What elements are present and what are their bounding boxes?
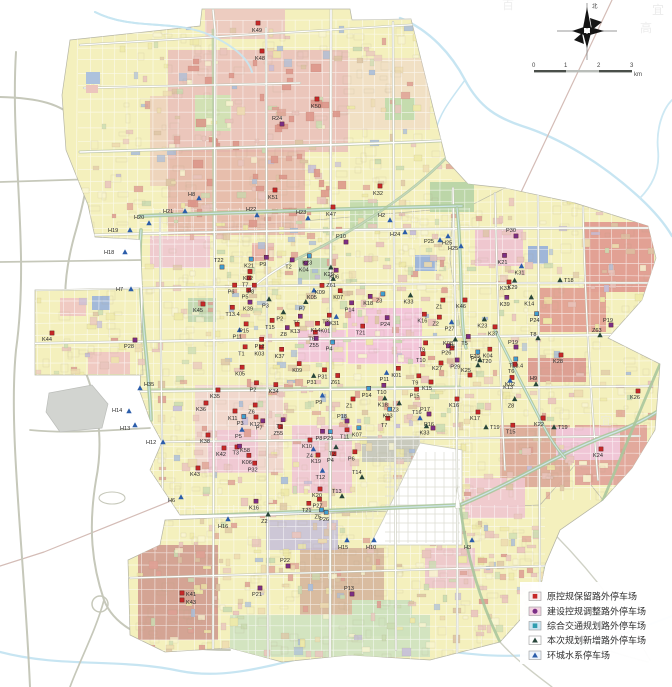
svg-text:T13.4: T13.4	[225, 312, 239, 318]
svg-text:K16: K16	[417, 319, 427, 325]
svg-text:H15: H15	[338, 545, 348, 551]
svg-text:Z5: Z5	[315, 514, 322, 520]
svg-text:K10: K10	[302, 444, 312, 450]
svg-text:T6: T6	[308, 337, 315, 343]
svg-text:H13: H13	[120, 426, 130, 432]
svg-text:Z61: Z61	[331, 380, 341, 386]
svg-text:T5: T5	[461, 341, 468, 347]
svg-text:K43: K43	[186, 600, 196, 606]
svg-text:P12: P12	[255, 344, 265, 350]
svg-text:P11: P11	[233, 334, 243, 340]
svg-text:K27: K27	[432, 366, 442, 372]
svg-text:P24: P24	[380, 322, 390, 328]
svg-text:T2: T2	[285, 264, 292, 270]
svg-text:P21: P21	[252, 592, 262, 598]
svg-text:K17: K17	[470, 416, 480, 422]
svg-text:K44: K44	[42, 337, 52, 343]
svg-text:Z3: Z3	[392, 408, 399, 414]
svg-text:K09: K09	[315, 290, 325, 296]
svg-text:P25: P25	[424, 239, 434, 245]
svg-text:K24: K24	[593, 453, 603, 459]
svg-text:T13.4: T13.4	[509, 364, 523, 370]
svg-text:H25: H25	[442, 241, 452, 247]
svg-text:P24: P24	[530, 318, 540, 324]
svg-text:T15: T15	[506, 430, 516, 436]
svg-text:H23: H23	[296, 210, 306, 216]
svg-text:P8: P8	[247, 290, 254, 296]
svg-text:T1: T1	[238, 351, 245, 357]
svg-text:H14: H14	[112, 408, 122, 414]
svg-text:K28: K28	[553, 359, 563, 365]
svg-text:本次规划新增路外停车场: 本次规划新增路外停车场	[547, 634, 646, 645]
svg-text:H21: H21	[163, 209, 173, 215]
svg-text:K43: K43	[190, 472, 200, 478]
svg-text:P19: P19	[603, 318, 613, 324]
svg-text:H7: H7	[116, 287, 123, 293]
svg-text:K39: K39	[243, 307, 253, 313]
svg-text:K45: K45	[193, 308, 203, 314]
svg-text:T8: T8	[530, 332, 537, 338]
svg-text:H2: H2	[378, 213, 385, 219]
svg-text:K21: K21	[498, 260, 508, 266]
svg-text:P3: P3	[262, 304, 269, 310]
svg-text:P29: P29	[323, 436, 333, 442]
svg-text:K16: K16	[449, 403, 459, 409]
svg-text:K35: K35	[210, 394, 220, 400]
svg-text:K15: K15	[422, 386, 432, 392]
svg-text:K46: K46	[456, 304, 466, 310]
svg-text:T22: T22	[214, 258, 224, 264]
svg-text:K31: K31	[329, 321, 339, 327]
svg-text:H22: H22	[246, 207, 256, 213]
svg-text:P31: P31	[318, 374, 328, 380]
svg-text:K13: K13	[503, 385, 513, 391]
svg-text:K07: K07	[333, 295, 343, 301]
svg-text:H25: H25	[448, 246, 458, 252]
svg-text:K14: K14	[524, 302, 534, 308]
svg-text:K39: K39	[500, 302, 510, 308]
svg-text:P19: P19	[508, 340, 518, 346]
svg-text:宜: 宜	[600, 413, 612, 428]
svg-text:T21: T21	[302, 508, 312, 514]
svg-text:T13: T13	[332, 489, 342, 495]
svg-text:T12: T12	[316, 475, 326, 481]
svg-text:H6: H6	[168, 498, 175, 504]
svg-text:T10: T10	[377, 390, 387, 396]
svg-text:P11: P11	[380, 377, 390, 383]
svg-text:Z1: Z1	[436, 305, 443, 311]
svg-text:K31: K31	[515, 271, 525, 277]
svg-text:K47: K47	[326, 212, 336, 218]
svg-text:H19: H19	[108, 228, 118, 234]
svg-text:P14: P14	[345, 307, 355, 313]
svg-text:P6: P6	[228, 290, 235, 296]
svg-text:P12: P12	[471, 357, 481, 363]
svg-text:P7: P7	[299, 306, 306, 312]
svg-text:T7: T7	[242, 282, 249, 288]
svg-text:Z2: Z2	[432, 322, 439, 328]
svg-text:Z55: Z55	[274, 431, 284, 437]
svg-text:K04: K04	[483, 354, 493, 360]
svg-text:T19: T19	[490, 425, 500, 431]
svg-text:综合交通规划路外停车场: 综合交通规划路外停车场	[547, 620, 646, 631]
svg-text:K18: K18	[378, 403, 388, 409]
svg-text:H3: H3	[464, 545, 471, 551]
svg-text:P3: P3	[237, 421, 244, 427]
svg-text:P30: P30	[506, 228, 516, 234]
svg-text:P15: P15	[239, 328, 249, 334]
svg-text:Z55: Z55	[309, 343, 319, 349]
svg-text:T21: T21	[356, 331, 366, 337]
svg-text:T1: T1	[276, 424, 283, 430]
svg-text:K03: K03	[383, 414, 393, 420]
svg-text:北: 北	[592, 2, 598, 10]
svg-text:K33: K33	[404, 300, 414, 306]
svg-text:K32: K32	[373, 191, 383, 197]
svg-text:P15: P15	[410, 394, 420, 400]
svg-text:P32: P32	[248, 468, 258, 474]
svg-text:Z8: Z8	[508, 403, 515, 409]
svg-text:宜: 宜	[652, 2, 664, 17]
svg-text:K13: K13	[290, 329, 300, 335]
svg-text:T2: T2	[329, 451, 336, 457]
svg-text:P4: P4	[327, 458, 334, 464]
svg-text:高: 高	[640, 20, 652, 35]
svg-text:K42: K42	[216, 452, 226, 458]
svg-text:T3: T3	[233, 451, 240, 457]
svg-text:Z1: Z1	[346, 404, 353, 410]
svg-text:K25: K25	[461, 368, 471, 374]
svg-text:P5: P5	[235, 434, 242, 440]
svg-text:K09: K09	[292, 368, 302, 374]
svg-text:K37: K37	[488, 331, 498, 337]
svg-text:P9: P9	[259, 262, 266, 268]
svg-text:K14: K14	[311, 328, 321, 334]
svg-text:P22: P22	[280, 558, 290, 564]
svg-text:K29: K29	[324, 272, 334, 278]
svg-text:T18: T18	[564, 278, 574, 284]
svg-text:K38: K38	[200, 439, 210, 445]
svg-text:K50: K50	[311, 104, 321, 110]
svg-text:K33: K33	[420, 431, 430, 437]
svg-text:K37: K37	[275, 354, 285, 360]
svg-text:P10: P10	[336, 234, 346, 240]
svg-text:T7: T7	[381, 423, 388, 429]
svg-text:T14: T14	[352, 470, 362, 476]
svg-text:Z63: Z63	[592, 328, 602, 334]
svg-text:P14: P14	[362, 393, 372, 399]
svg-text:T9: T9	[412, 380, 419, 386]
svg-text:K34: K34	[269, 389, 279, 395]
svg-text:百: 百	[502, 0, 514, 12]
svg-text:P27: P27	[445, 327, 455, 333]
svg-text:Z4: Z4	[306, 454, 313, 460]
svg-text:H9: H9	[530, 376, 537, 382]
svg-text:K18: K18	[363, 301, 373, 307]
svg-text:K05: K05	[235, 372, 245, 378]
svg-text:Z8: Z8	[280, 332, 287, 338]
svg-text:Z3: Z3	[376, 298, 383, 304]
svg-text:H35: H35	[144, 382, 154, 388]
svg-text:K36: K36	[196, 407, 206, 413]
svg-text:H12: H12	[146, 440, 156, 446]
svg-text:Z2: Z2	[261, 519, 268, 525]
svg-text:P18: P18	[337, 414, 347, 420]
svg-text:P2: P2	[250, 387, 257, 393]
svg-text:P2: P2	[276, 317, 283, 323]
svg-text:K21: K21	[244, 264, 254, 270]
svg-text:K07: K07	[352, 432, 362, 438]
svg-text:Z6: Z6	[248, 410, 255, 416]
svg-text:T19: T19	[558, 425, 568, 431]
svg-text:H10: H10	[366, 545, 376, 551]
svg-text:H20: H20	[134, 215, 144, 221]
svg-text:P6: P6	[348, 456, 355, 462]
svg-text:P17: P17	[420, 407, 430, 413]
svg-text:Z5: Z5	[448, 344, 455, 350]
svg-text:P31: P31	[307, 380, 317, 386]
svg-text:P7: P7	[256, 425, 263, 431]
svg-text:P8: P8	[316, 436, 323, 442]
svg-text:P26: P26	[441, 350, 451, 356]
svg-text:建设控规调整路外停车场: 建设控规调整路外停车场	[547, 605, 646, 616]
svg-text:H16: H16	[218, 524, 228, 530]
svg-text:K01: K01	[320, 328, 330, 334]
svg-text:P9: P9	[315, 400, 322, 406]
svg-text:K02: K02	[243, 276, 253, 282]
svg-text:环城水系停车场: 环城水系停车场	[547, 649, 610, 660]
svg-text:K29: K29	[508, 285, 518, 291]
svg-text:K26: K26	[630, 395, 640, 401]
svg-text:H24: H24	[390, 232, 400, 238]
svg-text:K48: K48	[255, 56, 265, 62]
svg-text:K23: K23	[477, 324, 487, 330]
svg-text:km: km	[634, 72, 642, 78]
svg-text:Z61: Z61	[326, 283, 336, 289]
svg-text:K23: K23	[302, 260, 312, 266]
svg-text:K22: K22	[534, 422, 544, 428]
svg-text:T20: T20	[482, 359, 492, 365]
svg-text:H8: H8	[188, 192, 195, 198]
svg-text:K01: K01	[391, 373, 401, 379]
svg-text:P29: P29	[450, 365, 460, 371]
svg-text:K41: K41	[186, 592, 196, 598]
svg-text:T11: T11	[340, 434, 349, 440]
svg-text:T15: T15	[265, 325, 275, 331]
svg-text:K19: K19	[311, 459, 321, 465]
svg-text:T10: T10	[416, 358, 426, 364]
svg-text:原控规保留路外停车场: 原控规保留路外停车场	[547, 590, 637, 601]
svg-text:K06: K06	[242, 460, 252, 466]
svg-text:K16: K16	[249, 506, 259, 512]
svg-text:K04: K04	[299, 268, 309, 274]
svg-text:H18: H18	[104, 250, 114, 256]
svg-text:P4: P4	[326, 347, 333, 353]
svg-text:P28: P28	[124, 344, 134, 350]
svg-text:K49: K49	[252, 28, 262, 34]
svg-text:R24: R24	[272, 116, 282, 122]
svg-text:K03: K03	[254, 352, 264, 358]
svg-text:T6: T6	[508, 369, 515, 375]
svg-text:P13: P13	[344, 586, 354, 592]
svg-text:K51: K51	[268, 195, 278, 201]
